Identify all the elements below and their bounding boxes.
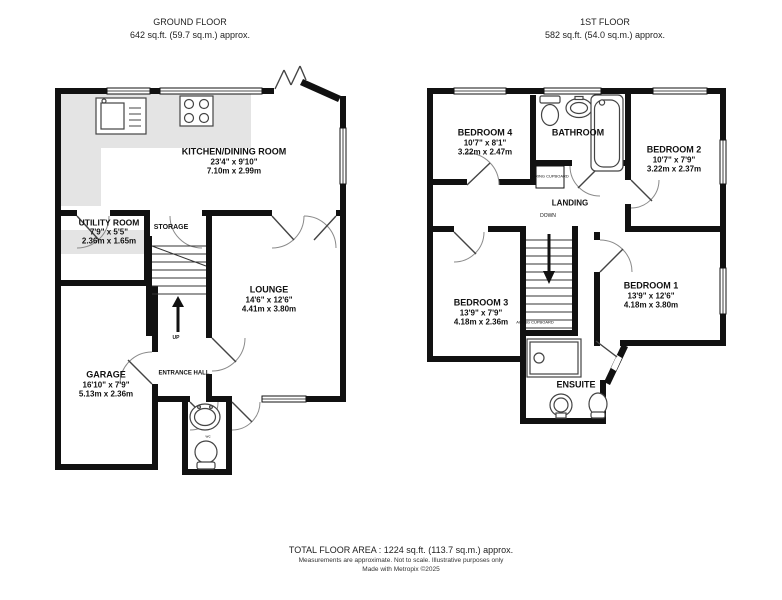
up-arrow-icon xyxy=(172,296,184,332)
room-label-garage: GARAGE 16'10" x 7'9" 5.13m x 2.36m xyxy=(79,369,133,398)
room-label-lounge: LOUNGE 14'6" x 12'6" 4.41m x 3.80m xyxy=(242,284,296,313)
room-label-entrance-hall: ENTRANCE HALL xyxy=(159,370,210,377)
wc-toilet-icon xyxy=(195,441,217,469)
ensuite-basin-icon xyxy=(550,394,572,418)
first-floor-title: 1ST FLOOR xyxy=(470,16,740,29)
ground-floor-title: GROUND FLOOR xyxy=(55,16,325,29)
room-label-bedroom2: BEDROOM 2 10'7" x 7'9" 3.22m x 2.37m xyxy=(647,144,702,173)
ff-staircase xyxy=(526,234,572,328)
credit: Made with Metropix ©2025 xyxy=(191,566,611,575)
room-label-bedroom3: BEDROOM 3 13'9" x 7'9" 4.18m x 2.36m xyxy=(454,297,509,326)
room-label-storage: STORAGE xyxy=(154,224,189,232)
floorplan-canvas: GROUND FLOOR 642 sq.ft. (59.7 sq.m.) app… xyxy=(0,0,782,600)
ff-windows xyxy=(454,88,726,314)
room-label-utility: UTILITY ROOM 7'9" x 5'5" 2.36m x 1.65m xyxy=(79,218,140,247)
down-arrow-icon xyxy=(543,234,555,284)
room-label-bathroom: BATHROOM xyxy=(552,128,604,139)
wc-basin-icon xyxy=(190,404,220,430)
room-label-ensuite: ENSUITE xyxy=(556,380,595,391)
kitchen-sink-icon xyxy=(96,98,146,134)
total-floor-area: TOTAL FLOOR AREA : 1224 sq.ft. (113.7 sq… xyxy=(191,545,611,555)
disclaimer: Measurements are approximate. Not to sca… xyxy=(191,557,611,566)
ground-floor-header: GROUND FLOOR 642 sq.ft. (59.7 sq.m.) app… xyxy=(55,16,325,42)
stair-label-down: DOWN xyxy=(540,214,556,220)
gf-staircase xyxy=(152,246,206,332)
first-floor-header: 1ST FLOOR 582 sq.ft. (54.0 sq.m.) approx… xyxy=(470,16,740,42)
shower-icon xyxy=(527,339,581,377)
first-floor-area: 582 sq.ft. (54.0 sq.m.) approx. xyxy=(470,29,740,42)
room-label-bedroom4: BEDROOM 4 10'7" x 8'1" 3.22m x 2.47m xyxy=(458,127,513,156)
room-label-landing: LANDING xyxy=(552,198,588,207)
ensuite-toilet-icon xyxy=(589,393,607,418)
room-label-wc: wc xyxy=(206,435,211,440)
ground-floor-area: 642 sq.ft. (59.7 sq.m.) approx. xyxy=(55,29,325,42)
footer: TOTAL FLOOR AREA : 1224 sq.ft. (113.7 sq… xyxy=(191,545,611,575)
ground-floor-plan xyxy=(55,66,346,475)
stair-label-up: UP xyxy=(173,336,180,342)
room-label-airing-cupboard: AIRING CUPBOARD xyxy=(516,321,554,326)
bathroom-basin-icon xyxy=(566,97,592,118)
room-label-bedroom1: BEDROOM 1 13'9" x 12'6" 4.18m x 3.80m xyxy=(624,280,679,309)
room-label-cupboard: AIRING CUPBOARD xyxy=(531,175,569,180)
room-label-kitchen: KITCHEN/DINING ROOM 23'4" x 9'10" 7.10m … xyxy=(182,146,287,175)
hob-icon xyxy=(180,96,213,126)
bathroom-toilet-icon xyxy=(540,96,560,126)
